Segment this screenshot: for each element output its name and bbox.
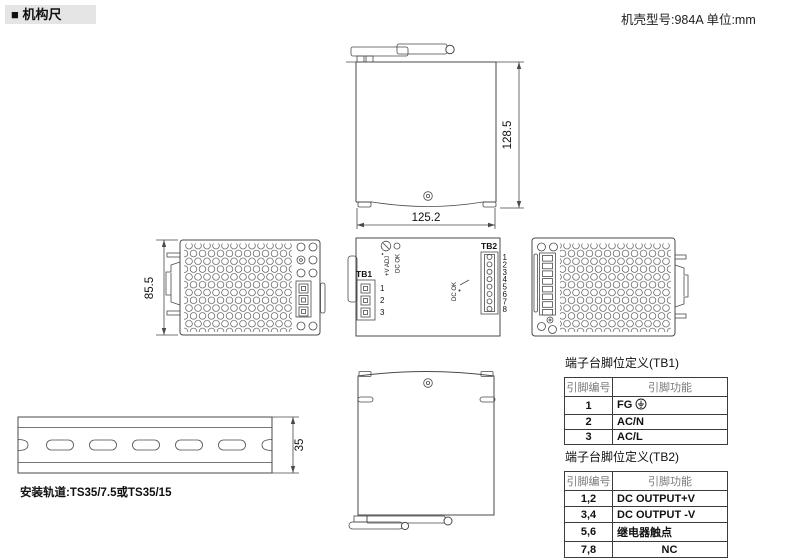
tb2-definition-block: 端子台脚位定义(TB2) 引脚编号 引脚功能 1,2 DC OUTPUT+V 3… [564, 448, 744, 558]
dim-side-height: 128.5 [502, 121, 514, 150]
dim-rail-width: 35 [294, 439, 306, 452]
table-header-row: 引脚编号 引脚功能 [565, 378, 728, 397]
tb1-row3-pin: 3 [565, 430, 613, 445]
tb2-terminal-block [481, 252, 498, 314]
table-row: 2 AC/N [565, 415, 728, 430]
drawing-left-vented-view: 85.5 [144, 240, 325, 335]
tb1-connector-label: TB1 [356, 269, 372, 279]
tb1-pin-1: 1 [380, 284, 385, 293]
tb1-col-pin-number: 引脚编号 [565, 378, 613, 397]
table-row: 7,8 NC [565, 542, 728, 558]
tb2-connector-label: TB2 [481, 241, 497, 251]
table-row: 1,2 DC OUTPUT+V [565, 491, 728, 507]
earth-ground-icon [635, 398, 647, 413]
tb2-row2-func: DC OUTPUT -V [613, 507, 728, 523]
tb1-col-pin-function: 引脚功能 [613, 378, 728, 397]
dim-left-view-height: 85.5 [144, 277, 156, 299]
tb2-row4-pin: 7,8 [565, 542, 613, 558]
drawing-din-rail: 35 [18, 417, 306, 473]
terminal-slot-strip [296, 281, 311, 317]
tb1-definition-block: 端子台脚位定义(TB1) 引脚编号 引脚功能 1 FG 2 AC/N 3 AC/… [564, 354, 744, 445]
table-row: 5,6 继电器触点 [565, 523, 728, 542]
tb2-row3-pin: 5,6 [565, 523, 613, 542]
tb2-col-pin-number: 引脚编号 [565, 472, 613, 491]
tb1-pin-2: 2 [380, 296, 385, 305]
tb2-pin-8: 8 [503, 305, 508, 314]
tb2-pin-table: 引脚编号 引脚功能 1,2 DC OUTPUT+V 3,4 DC OUTPUT … [564, 471, 728, 558]
tb1-pin-3: 3 [380, 308, 385, 317]
tb2-row1-func: DC OUTPUT+V [613, 491, 728, 507]
tb2-col-pin-function: 引脚功能 [613, 472, 728, 491]
drawing-top-side-view: 128.5 125.2 [346, 44, 524, 229]
table-row: 3 AC/L [565, 430, 728, 445]
dim-side-width: 125.2 [412, 212, 441, 224]
tb2-table-title: 端子台脚位定义(TB2) [565, 448, 744, 465]
tb2-row1-pin: 1,2 [565, 491, 613, 507]
tb1-row2-func: AC/N [613, 415, 728, 430]
tb1-row2-pin: 2 [565, 415, 613, 430]
vent-hole-pattern [184, 244, 292, 333]
tb1-row3-func: AC/L [613, 430, 728, 445]
tb2-row4-func: NC [613, 542, 728, 558]
drawing-front-view: TB1 1 2 3 +V ADJ DC OK TB2 [348, 238, 508, 336]
dcok-led [394, 243, 400, 249]
vadj-label: +V ADJ [385, 256, 391, 276]
tb2-row3-func: 继电器触点 [613, 523, 728, 542]
drawing-rear-view [349, 372, 495, 530]
tb1-table-title: 端子台脚位定义(TB1) [565, 354, 744, 371]
dcok-label: DC OK [396, 254, 402, 273]
tb1-row1-pin: 1 [565, 397, 613, 415]
tb1-row1-func: FG [613, 397, 728, 415]
drawing-right-vented-view [532, 238, 688, 336]
terminal-slot-strip [540, 253, 556, 315]
tb2-row2-pin: 3,4 [565, 507, 613, 523]
tb1-terminal-block [357, 280, 375, 320]
table-header-row: 引脚编号 引脚功能 [565, 472, 728, 491]
table-row: 1 FG [565, 397, 728, 415]
rail-type-caption: 安装轨道:TS35/7.5或TS35/15 [20, 484, 171, 500]
relay-dcok-label: DC OK [452, 282, 458, 301]
tb1-pin-table: 引脚编号 引脚功能 1 FG 2 AC/N 3 AC/L [564, 377, 728, 445]
table-row: 3,4 DC OUTPUT -V [565, 507, 728, 523]
vent-hole-pattern [560, 244, 671, 333]
